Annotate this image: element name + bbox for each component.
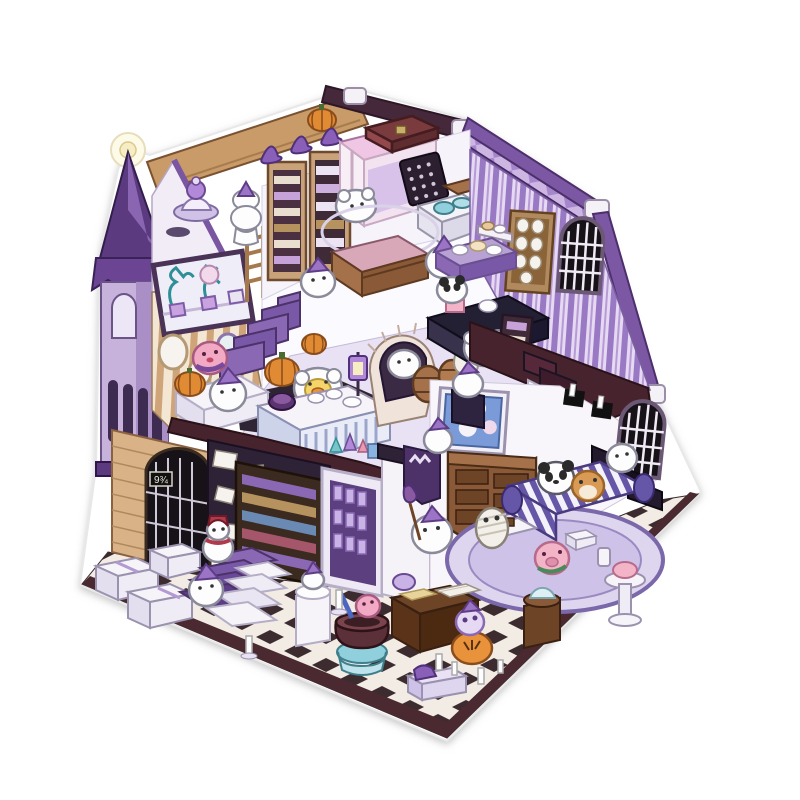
svg-text:9¾: 9¾ [154,475,169,486]
